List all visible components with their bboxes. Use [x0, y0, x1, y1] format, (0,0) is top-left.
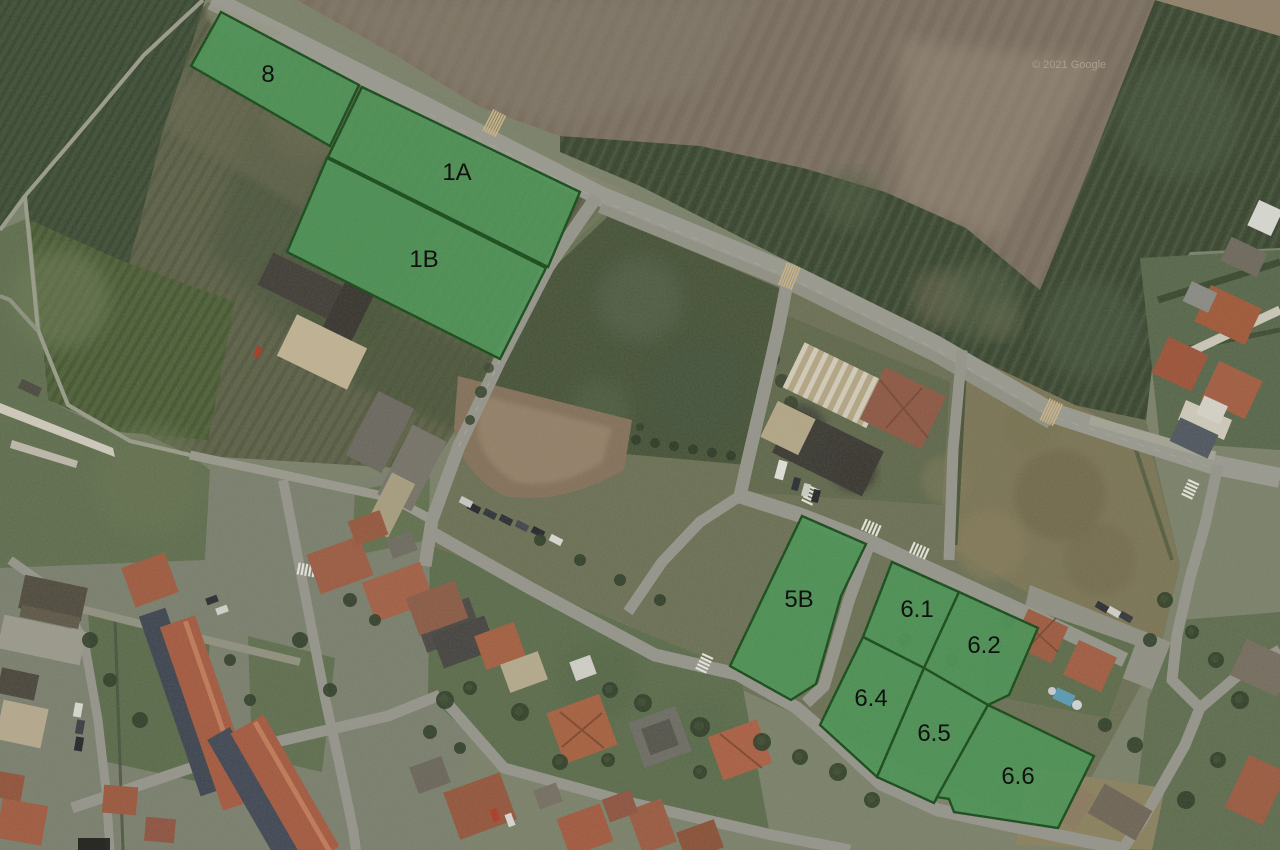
- svg-text:© 2021 Google: © 2021 Google: [1032, 59, 1106, 71]
